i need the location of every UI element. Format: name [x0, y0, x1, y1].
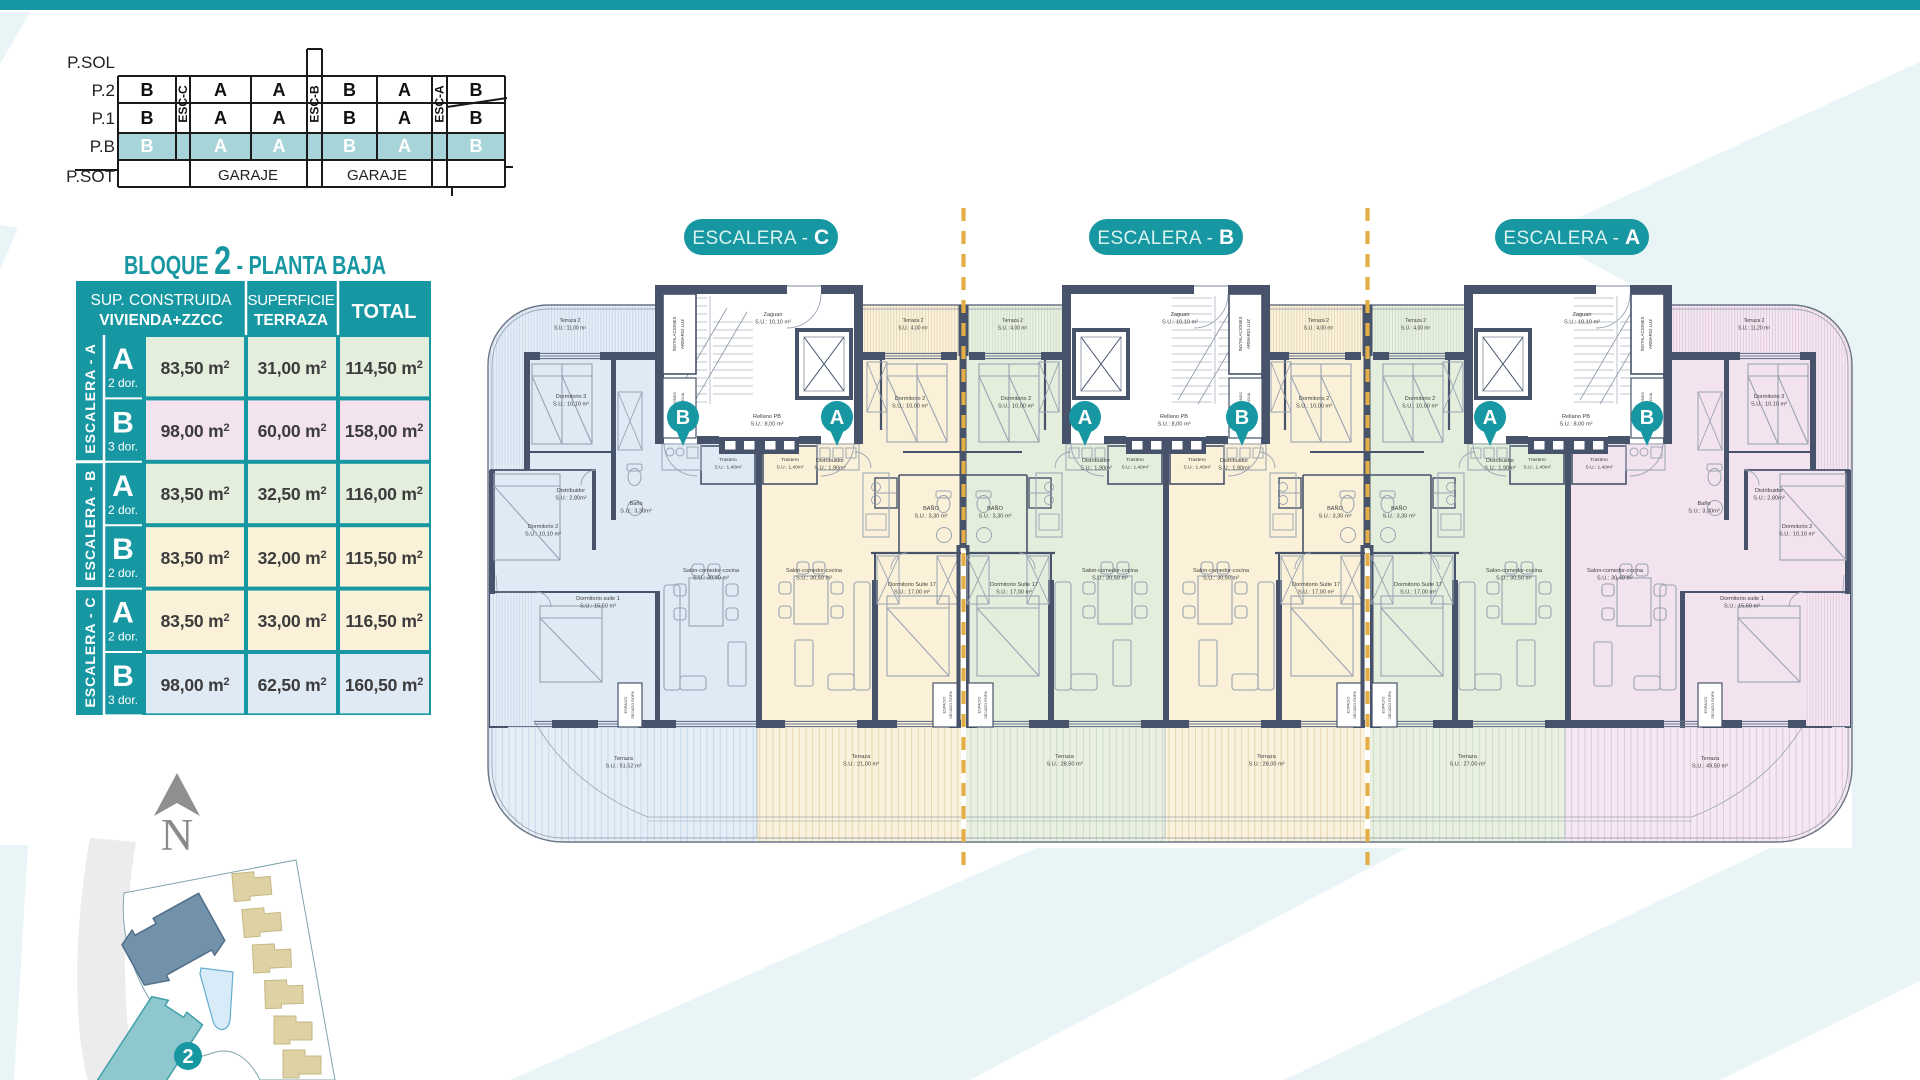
svg-text:S.U.: 1,40m²: S.U.: 1,40m²	[1524, 465, 1551, 471]
svg-text:83,50 m2: 83,50 m2	[161, 484, 230, 504]
svg-text:S.U.: 3,30m²: S.U.: 3,30m²	[1688, 509, 1720, 515]
svg-text:B: B	[343, 108, 356, 128]
svg-text:Rellano PB: Rellano PB	[1562, 414, 1590, 420]
svg-text:S.U.: 30,50 m²: S.U.: 30,50 m²	[1203, 576, 1239, 582]
svg-text:GARAJE: GARAJE	[218, 167, 278, 184]
svg-text:32,50 m2: 32,50 m2	[258, 484, 327, 504]
svg-text:S.U.: 8,00 m²: S.U.: 8,00 m²	[1158, 422, 1191, 428]
svg-text:S.U.: 21,00 m²: S.U.: 21,00 m²	[843, 762, 879, 768]
svg-text:S.U.: 1,90m²: S.U.: 1,90m²	[814, 466, 846, 472]
svg-text:ESC-B: ESC-B	[308, 85, 322, 123]
svg-text:ARMARIO LUZ: ARMARIO LUZ	[1648, 319, 1653, 349]
svg-text:S.U.: 4,00 m²: S.U.: 4,00 m²	[998, 326, 1028, 332]
svg-text:Trastero: Trastero	[719, 457, 737, 463]
svg-text:S.U.: 17,00 m²: S.U.: 17,00 m²	[1400, 590, 1436, 596]
svg-text:N: N	[161, 810, 194, 860]
svg-text:B: B	[470, 136, 483, 156]
svg-text:S.U.: 3,30 m²: S.U.: 3,30 m²	[1383, 514, 1416, 520]
svg-text:B: B	[112, 533, 134, 566]
svg-text:S.U.: 2,80m²: S.U.: 2,80m²	[555, 496, 587, 502]
svg-text:SECADO ROPA: SECADO ROPA	[1353, 691, 1357, 719]
svg-text:Dormitorio 2: Dormitorio 2	[895, 396, 925, 402]
svg-text:GARAJE: GARAJE	[347, 167, 407, 184]
svg-text:3 dor.: 3 dor.	[108, 693, 138, 707]
svg-text:Terraza 2: Terraza 2	[903, 318, 924, 324]
svg-text:S.U.: 30,40 m²: S.U.: 30,40 m²	[1597, 576, 1633, 582]
svg-text:62,50 m2: 62,50 m2	[258, 675, 327, 695]
svg-text:BAÑO: BAÑO	[987, 505, 1004, 512]
svg-text:S.U.: 11,20 m²: S.U.: 11,20 m²	[1738, 326, 1770, 332]
svg-text:115,50 m2: 115,50 m2	[345, 548, 422, 568]
svg-text:Terraza: Terraza	[1257, 754, 1277, 760]
svg-text:Dormitorio 3: Dormitorio 3	[1754, 394, 1784, 400]
svg-text:S.U.: 15,50 m²: S.U.: 15,50 m²	[1724, 604, 1760, 610]
svg-text:Terraza 2: Terraza 2	[1308, 318, 1329, 324]
svg-text:SECADO ROPA: SECADO ROPA	[949, 691, 953, 719]
svg-text:Terraza: Terraza	[614, 756, 634, 762]
svg-text:S.U.: 1,90m²: S.U.: 1,90m²	[1218, 466, 1250, 472]
svg-text:ARMARIO LUZ: ARMARIO LUZ	[680, 319, 685, 349]
svg-text:Distribuidor: Distribuidor	[1082, 458, 1110, 464]
svg-text:S.U.: 1,40m²: S.U.: 1,40m²	[777, 465, 804, 471]
svg-text:A: A	[273, 80, 286, 100]
svg-text:VIVIENDA+ZZCC: VIVIENDA+ZZCC	[99, 312, 223, 329]
svg-text:S.U.: 10,00 m²: S.U.: 10,00 m²	[998, 404, 1034, 410]
svg-text:B: B	[470, 108, 483, 128]
svg-text:Dormitorio 2: Dormitorio 2	[1782, 524, 1812, 530]
svg-text:Salon-comedor-cocina: Salon-comedor-cocina	[1486, 568, 1543, 574]
svg-text:Zaguan: Zaguan	[1171, 312, 1190, 318]
svg-text:Terraza 2: Terraza 2	[1405, 318, 1426, 324]
svg-text:B: B	[141, 108, 154, 128]
svg-text:SECADO ROPA: SECADO ROPA	[1711, 691, 1715, 719]
svg-text:S.U.: 3,30 m²: S.U.: 3,30 m²	[979, 514, 1012, 520]
svg-text:SECADO ROPA: SECADO ROPA	[1388, 691, 1392, 719]
svg-text:S.U.: 30,50 m²: S.U.: 30,50 m²	[1496, 576, 1532, 582]
svg-text:Dormitorio 2: Dormitorio 2	[1001, 396, 1031, 402]
svg-text:158,00 m2: 158,00 m2	[345, 421, 423, 441]
svg-text:S.U.: 28,00 m²: S.U.: 28,00 m²	[1248, 762, 1284, 768]
svg-text:S.U.: 1,40m²: S.U.: 1,40m²	[715, 465, 742, 471]
svg-text:Terraza: Terraza	[1701, 756, 1721, 762]
svg-text:SUPERFICIE: SUPERFICIE	[247, 292, 334, 309]
svg-text:S.U.: 8,00 m²: S.U.: 8,00 m²	[751, 422, 784, 428]
svg-text:B: B	[676, 407, 690, 429]
svg-text:A: A	[1483, 407, 1497, 429]
svg-text:Dormitorio 2: Dormitorio 2	[1299, 396, 1329, 402]
svg-text:S.U.: 4,00 m²: S.U.: 4,00 m²	[898, 326, 928, 332]
svg-text:S.U.: 17,00 m²: S.U.: 17,00 m²	[1298, 590, 1334, 596]
svg-text:Distribuidor: Distribuidor	[1755, 488, 1783, 494]
svg-text:S.U.: 3,30m²: S.U.: 3,30m²	[620, 509, 652, 515]
svg-text:ESPACIO: ESPACIO	[943, 697, 947, 714]
svg-text:2: 2	[182, 1046, 193, 1068]
svg-text:31,00 m2: 31,00 m2	[258, 358, 327, 378]
svg-text:A: A	[214, 136, 227, 156]
svg-text:S.U.: 8,00 m²: S.U.: 8,00 m²	[1560, 422, 1593, 428]
svg-text:Distribuidor: Distribuidor	[557, 488, 585, 494]
svg-text:B: B	[141, 136, 154, 156]
svg-text:116,50 m2: 116,50 m2	[345, 611, 422, 631]
svg-text:Dormitorio suite 1: Dormitorio suite 1	[576, 596, 620, 602]
svg-text:S.U.: 10,10 m²: S.U.: 10,10 m²	[1779, 532, 1815, 538]
svg-text:98,00 m2: 98,00 m2	[161, 421, 230, 441]
svg-text:ESPACIO: ESPACIO	[1382, 697, 1386, 714]
svg-text:TOTAL: TOTAL	[352, 301, 417, 323]
svg-text:S.U.: 30,50 m²: S.U.: 30,50 m²	[1092, 576, 1128, 582]
svg-text:A: A	[830, 407, 844, 429]
svg-text:S.U.: 17,00 m²: S.U.: 17,00 m²	[996, 590, 1032, 596]
svg-text:INSTALACIONES: INSTALACIONES	[1640, 317, 1645, 352]
svg-text:ESCALERA - A: ESCALERA - A	[1503, 226, 1640, 249]
svg-text:83,50 m2: 83,50 m2	[161, 611, 230, 631]
svg-text:SECADO ROPA: SECADO ROPA	[984, 691, 988, 719]
svg-text:Trastero: Trastero	[1528, 457, 1546, 463]
svg-text:P.B: P.B	[90, 137, 115, 156]
svg-text:ESPACIO: ESPACIO	[978, 697, 982, 714]
svg-text:A: A	[1078, 407, 1092, 429]
svg-text:160,50 m2: 160,50 m2	[345, 675, 423, 695]
svg-text:INSTALACIONES: INSTALACIONES	[672, 317, 677, 352]
svg-text:ESCALERA - C: ESCALERA - C	[82, 596, 98, 707]
svg-text:Zaguan: Zaguan	[764, 312, 783, 318]
svg-text:B: B	[1640, 407, 1654, 429]
svg-text:TERRAZA: TERRAZA	[254, 312, 328, 329]
svg-text:60,00 m2: 60,00 m2	[258, 421, 327, 441]
svg-text:S.U.: 3,30 m²: S.U.: 3,30 m²	[1319, 514, 1352, 520]
svg-text:Trastero: Trastero	[1126, 457, 1144, 463]
svg-text:BAÑO: BAÑO	[1391, 505, 1408, 512]
svg-text:Trastero: Trastero	[1590, 457, 1608, 463]
svg-text:S.U.: 10,10 m²: S.U.: 10,10 m²	[755, 320, 791, 326]
svg-text:A: A	[112, 597, 134, 630]
svg-text:P.2: P.2	[92, 81, 115, 100]
svg-text:BAÑO: BAÑO	[1327, 505, 1344, 512]
svg-text:ESPACIO: ESPACIO	[624, 697, 628, 714]
svg-text:S.U.: 10,10 m²: S.U.: 10,10 m²	[525, 532, 561, 538]
svg-text:A: A	[214, 80, 227, 100]
svg-text:S.U.: 1,40m²: S.U.: 1,40m²	[1122, 465, 1149, 471]
svg-text:S.U.: 51,52 m²: S.U.: 51,52 m²	[605, 764, 641, 770]
svg-text:S.U.: 15,50 m²: S.U.: 15,50 m²	[580, 604, 616, 610]
svg-text:Salon-comedor-cocina: Salon-comedor-cocina	[683, 568, 740, 574]
svg-text:Terraza 2: Terraza 2	[1002, 318, 1023, 324]
svg-text:83,50 m2: 83,50 m2	[161, 548, 230, 568]
svg-text:Baño: Baño	[1697, 501, 1710, 507]
svg-text:S.U.: 10,00 m²: S.U.: 10,00 m²	[1402, 404, 1438, 410]
svg-text:A: A	[112, 470, 134, 503]
svg-text:S.U.: 28,50 m²: S.U.: 28,50 m²	[1046, 762, 1082, 768]
svg-text:Distribuidor: Distribuidor	[1220, 458, 1248, 464]
svg-text:SUP. CONSTRUIDA: SUP. CONSTRUIDA	[91, 292, 233, 309]
svg-text:S.U.: 10,10 m²: S.U.: 10,10 m²	[553, 402, 589, 408]
svg-text:S.U.: 4,00 m²: S.U.: 4,00 m²	[1401, 326, 1431, 332]
svg-text:A: A	[398, 108, 411, 128]
svg-text:Dormitorio Suite 17: Dormitorio Suite 17	[1292, 582, 1340, 588]
svg-text:S.U.: 1,90m²: S.U.: 1,90m²	[1484, 466, 1516, 472]
svg-text:3 dor.: 3 dor.	[108, 439, 138, 453]
svg-text:S.U.: 49,50 m²: S.U.: 49,50 m²	[1692, 764, 1728, 770]
svg-text:S.U.: 2,80m²: S.U.: 2,80m²	[1753, 496, 1785, 502]
svg-text:INSTALACIONES: INSTALACIONES	[1238, 317, 1243, 352]
svg-text:Salon-comedor-cocina: Salon-comedor-cocina	[1587, 568, 1644, 574]
svg-text:S.U.: 10,10 m²: S.U.: 10,10 m²	[1162, 320, 1198, 326]
svg-text:ESC-A: ESC-A	[433, 85, 447, 123]
svg-text:S.U.: 1,40m²: S.U.: 1,40m²	[1184, 465, 1211, 471]
svg-text:Dormitorio 3: Dormitorio 3	[556, 394, 586, 400]
svg-text:Zaguan: Zaguan	[1573, 312, 1592, 318]
svg-text:BAÑO: BAÑO	[923, 505, 940, 512]
svg-text:ARMARIO LUZ: ARMARIO LUZ	[1246, 319, 1251, 349]
svg-text:Distribuidor: Distribuidor	[816, 458, 844, 464]
svg-text:ESCALERA - B: ESCALERA - B	[1097, 226, 1234, 249]
svg-text:Salon-comedor-cocina: Salon-comedor-cocina	[786, 568, 843, 574]
svg-text:Dormitorio suite 1: Dormitorio suite 1	[1720, 596, 1764, 602]
svg-text:2 dor.: 2 dor.	[108, 376, 138, 390]
svg-text:114,50 m2: 114,50 m2	[345, 358, 422, 378]
svg-text:Salon-comedor-cocina: Salon-comedor-cocina	[1193, 568, 1250, 574]
svg-text:Dormitorio 2: Dormitorio 2	[1405, 396, 1435, 402]
svg-text:B: B	[470, 80, 483, 100]
svg-text:33,00 m2: 33,00 m2	[258, 611, 327, 631]
svg-text:A: A	[398, 136, 411, 156]
svg-text:ESPACIO: ESPACIO	[1704, 697, 1708, 714]
svg-text:P.SOL: P.SOL	[67, 53, 115, 72]
svg-text:S.U.: 27,00 m²: S.U.: 27,00 m²	[1449, 762, 1485, 768]
svg-text:B: B	[112, 660, 134, 693]
svg-text:Terraza 2: Terraza 2	[560, 318, 581, 324]
svg-text:S.U.: 10,10 m²: S.U.: 10,10 m²	[1564, 320, 1600, 326]
svg-text:ESCALERA - C: ESCALERA - C	[692, 226, 829, 249]
svg-text:Rellano PB: Rellano PB	[753, 414, 781, 420]
svg-text:116,00 m2: 116,00 m2	[345, 484, 422, 504]
svg-text:Trastero: Trastero	[1188, 457, 1206, 463]
svg-text:Dormitorio Suite 17: Dormitorio Suite 17	[990, 582, 1038, 588]
svg-text:S.U.: 11,00 m²: S.U.: 11,00 m²	[554, 326, 586, 332]
svg-text:SECADO ROPA: SECADO ROPA	[631, 691, 635, 719]
svg-text:B: B	[141, 80, 154, 100]
svg-text:32,00 m2: 32,00 m2	[258, 548, 327, 568]
svg-text:S.U.: 1,40m²: S.U.: 1,40m²	[1586, 465, 1613, 471]
svg-text:ESPACIO: ESPACIO	[1347, 697, 1351, 714]
svg-text:ESC-C: ESC-C	[176, 85, 190, 123]
svg-text:P.1: P.1	[92, 109, 115, 128]
svg-text:S.U.: 10,00 m²: S.U.: 10,00 m²	[892, 404, 928, 410]
svg-text:Rellano PB: Rellano PB	[1160, 414, 1188, 420]
svg-text:Terraza: Terraza	[1458, 754, 1478, 760]
svg-text:Terraza 2: Terraza 2	[1744, 318, 1765, 324]
svg-text:B: B	[343, 136, 356, 156]
svg-text:S.U.: 4,00 m²: S.U.: 4,00 m²	[1304, 326, 1334, 332]
svg-text:S.U.: 3,30 m²: S.U.: 3,30 m²	[915, 514, 948, 520]
svg-text:2 dor.: 2 dor.	[108, 503, 138, 517]
svg-text:ESCALERA - B: ESCALERA - B	[82, 470, 98, 581]
svg-text:Distribuidor: Distribuidor	[1486, 458, 1514, 464]
svg-text:83,50 m2: 83,50 m2	[161, 358, 230, 378]
svg-text:98,00 m2: 98,00 m2	[161, 675, 230, 695]
svg-text:A: A	[398, 80, 411, 100]
svg-text:B: B	[343, 80, 356, 100]
svg-text:Dormitorio Suite 17: Dormitorio Suite 17	[1394, 582, 1442, 588]
svg-text:S.U.: 30,50 m²: S.U.: 30,50 m²	[796, 576, 832, 582]
svg-text:Salon-comedor-cocina: Salon-comedor-cocina	[1082, 568, 1139, 574]
svg-text:A: A	[214, 108, 227, 128]
svg-text:Terraza: Terraza	[1055, 754, 1075, 760]
svg-text:Dormitorio 2: Dormitorio 2	[528, 524, 558, 530]
svg-text:A: A	[273, 108, 286, 128]
svg-text:S.U.: 30,40 m²: S.U.: 30,40 m²	[693, 576, 729, 582]
svg-text:S.U.: 10,10 m²: S.U.: 10,10 m²	[1751, 402, 1787, 408]
svg-text:Terraza: Terraza	[852, 754, 872, 760]
svg-text:Baño: Baño	[629, 501, 642, 507]
svg-text:ESCALERA - A: ESCALERA - A	[82, 343, 98, 454]
svg-text:2 dor.: 2 dor.	[108, 566, 138, 580]
svg-text:S.U.: 10,00 m²: S.U.: 10,00 m²	[1296, 404, 1332, 410]
svg-text:Trastero: Trastero	[781, 457, 799, 463]
svg-text:2 dor.: 2 dor.	[108, 630, 138, 644]
svg-text:Dormitorio Suite 17: Dormitorio Suite 17	[888, 582, 936, 588]
svg-text:S.U.: 17,00 m²: S.U.: 17,00 m²	[894, 590, 930, 596]
svg-text:A: A	[273, 136, 286, 156]
svg-text:A: A	[112, 343, 134, 376]
svg-text:B: B	[1235, 407, 1249, 429]
svg-text:B: B	[112, 406, 134, 439]
